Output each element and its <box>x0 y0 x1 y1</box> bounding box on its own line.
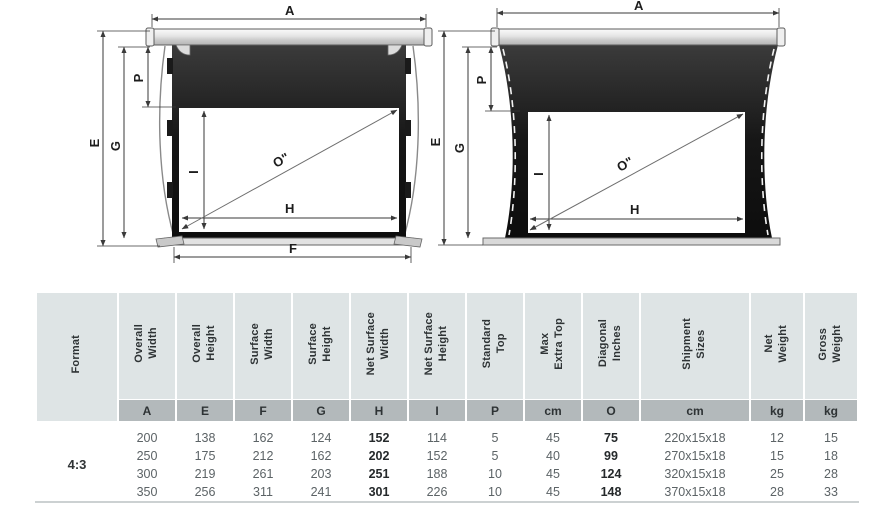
cell: 40 <box>525 447 581 464</box>
cell: 220x15x18 <box>641 429 749 446</box>
cell: 202 <box>351 447 407 464</box>
left-tab <box>405 182 411 198</box>
cell: 33 <box>805 483 857 500</box>
cell: 203 <box>293 465 349 482</box>
cell: 256 <box>177 483 233 500</box>
col-header-label: Gross Weight <box>817 325 845 363</box>
cell: 138 <box>177 429 233 446</box>
cell: 241 <box>293 483 349 500</box>
left-tab <box>405 120 411 136</box>
col-header-format-label: Format <box>70 335 84 373</box>
spec-table-section: Format Overall Width Overall Height Surf… <box>0 292 873 503</box>
col-header-label: Max Extra Top <box>539 318 567 370</box>
right-label-I: I <box>531 172 546 176</box>
letter-O: O <box>583 400 639 421</box>
cell: 188 <box>409 465 465 482</box>
col-header-net-surface-height: Net Surface Height <box>409 293 465 399</box>
table-row: 4:3 200 138 162 124 152 114 5 45 75 220x… <box>37 429 857 446</box>
cell: 114 <box>409 429 465 446</box>
table-row: 300 219 261 203 251 188 10 45 124 320x15… <box>37 465 857 482</box>
letter-I: I <box>409 400 465 421</box>
letter-row: A E F G H I P cm O cm kg kg <box>37 400 857 421</box>
cell: 300 <box>119 465 175 482</box>
cell: 320x15x18 <box>641 465 749 482</box>
cell: 175 <box>177 447 233 464</box>
cell: 226 <box>409 483 465 500</box>
left-label-A: A <box>285 3 295 18</box>
letter-cm-extra-top: cm <box>525 400 581 421</box>
left-case-endcap <box>424 28 432 46</box>
letter-kg-net: kg <box>751 400 803 421</box>
table-row <box>37 422 857 428</box>
cell: 261 <box>235 465 291 482</box>
cell: 250 <box>119 447 175 464</box>
letter-kg-gross: kg <box>805 400 857 421</box>
cell: 219 <box>177 465 233 482</box>
cell: 15 <box>751 447 803 464</box>
col-header-label: Overall Width <box>133 324 161 363</box>
letter-G: G <box>293 400 349 421</box>
left-label-F: F <box>289 241 297 256</box>
col-header-net-surface-width: Net Surface Width <box>351 293 407 399</box>
left-tab <box>167 182 173 198</box>
left-cable-right <box>404 46 418 237</box>
col-header-label: Net Surface Width <box>365 312 393 375</box>
cell: 124 <box>583 465 639 482</box>
cell: 99 <box>583 447 639 464</box>
letter-H: H <box>351 400 407 421</box>
col-header-label: Surface Width <box>249 323 277 365</box>
technical-diagrams: A E G P I H O" F <box>0 0 873 292</box>
right-label-E: E <box>428 137 443 146</box>
cell: 28 <box>805 465 857 482</box>
screen-dimension-drawings: A E G P I H O" F <box>0 0 873 292</box>
right-label-A: A <box>634 0 644 13</box>
col-header-standard-top: Standard Top <box>467 293 523 399</box>
col-header-label: Net Surface Height <box>423 312 451 375</box>
cell: 148 <box>583 483 639 500</box>
header-row: Format Overall Width Overall Height Surf… <box>37 293 857 399</box>
left-label-G: G <box>108 141 123 151</box>
cell: 25 <box>751 465 803 482</box>
cell: 5 <box>467 447 523 464</box>
cell: 28 <box>751 483 803 500</box>
right-label-P: P <box>474 75 489 84</box>
left-label-I: I <box>186 170 201 174</box>
cell: 5 <box>467 429 523 446</box>
letter-P: P <box>467 400 523 421</box>
letter-E: E <box>177 400 233 421</box>
cell: 10 <box>467 465 523 482</box>
cell: 45 <box>525 483 581 500</box>
col-header-surface-width: Surface Width <box>235 293 291 399</box>
table-row: 350 256 311 241 301 226 10 45 148 370x15… <box>37 483 857 500</box>
col-header-label: Standard Top <box>481 319 509 368</box>
col-header-overall-width: Overall Width <box>119 293 175 399</box>
cell: 270x15x18 <box>641 447 749 464</box>
letter-cm-shipment: cm <box>641 400 749 421</box>
cell: 152 <box>351 429 407 446</box>
dimension-table: Format Overall Width Overall Height Surf… <box>35 292 859 503</box>
left-label-E: E <box>87 138 102 147</box>
right-case-endcap <box>777 28 785 46</box>
cell: 251 <box>351 465 407 482</box>
table-row: 250 175 212 162 202 152 5 40 99 270x15x1… <box>37 447 857 464</box>
col-header-label: Overall Height <box>191 324 219 363</box>
cell: 10 <box>467 483 523 500</box>
cell: 75 <box>583 429 639 446</box>
cell: 45 <box>525 465 581 482</box>
col-header-surface-height: Surface Height <box>293 293 349 399</box>
cell: 45 <box>525 429 581 446</box>
cell: 12 <box>751 429 803 446</box>
left-tab <box>167 58 173 74</box>
cell: 18 <box>805 447 857 464</box>
letter-F: F <box>235 400 291 421</box>
col-header-label: Shipment Sizes <box>681 318 709 370</box>
col-header-overall-height: Overall Height <box>177 293 233 399</box>
right-label-H: H <box>630 202 639 217</box>
col-header-diagonal-inches: Diagonal Inches <box>583 293 639 399</box>
cell: 370x15x18 <box>641 483 749 500</box>
cell: 162 <box>235 429 291 446</box>
col-header-label: Surface Height <box>307 323 335 365</box>
right-label-G: G <box>452 143 467 153</box>
col-header-net-weight: Net Weight <box>751 293 803 399</box>
cell: 124 <box>293 429 349 446</box>
left-diagram: A E G P I H O" F <box>87 3 432 263</box>
col-header-shipment-sizes: Shipment Sizes <box>641 293 749 399</box>
cell: 162 <box>293 447 349 464</box>
left-label-H: H <box>285 201 294 216</box>
cell: 301 <box>351 483 407 500</box>
right-diagram: A E G P I H O" <box>428 0 785 245</box>
col-header-gross-weight: Gross Weight <box>805 293 857 399</box>
letter-A: A <box>119 400 175 421</box>
cell: 212 <box>235 447 291 464</box>
cell: 311 <box>235 483 291 500</box>
left-tab <box>405 58 411 74</box>
format-value: 4:3 <box>37 429 117 500</box>
cell: 15 <box>805 429 857 446</box>
col-header-label: Net Weight <box>763 325 791 363</box>
cell: 200 <box>119 429 175 446</box>
col-header-format: Format <box>37 293 117 421</box>
left-cable-left <box>160 46 174 237</box>
left-case <box>150 29 428 45</box>
col-header-max-extra-top: Max Extra Top <box>525 293 581 399</box>
right-bottom-bar <box>483 238 780 245</box>
col-header-label: Diagonal Inches <box>597 319 625 367</box>
left-label-P: P <box>131 73 146 82</box>
cell: 152 <box>409 447 465 464</box>
left-tab <box>167 120 173 136</box>
right-case <box>495 29 781 45</box>
cell: 350 <box>119 483 175 500</box>
